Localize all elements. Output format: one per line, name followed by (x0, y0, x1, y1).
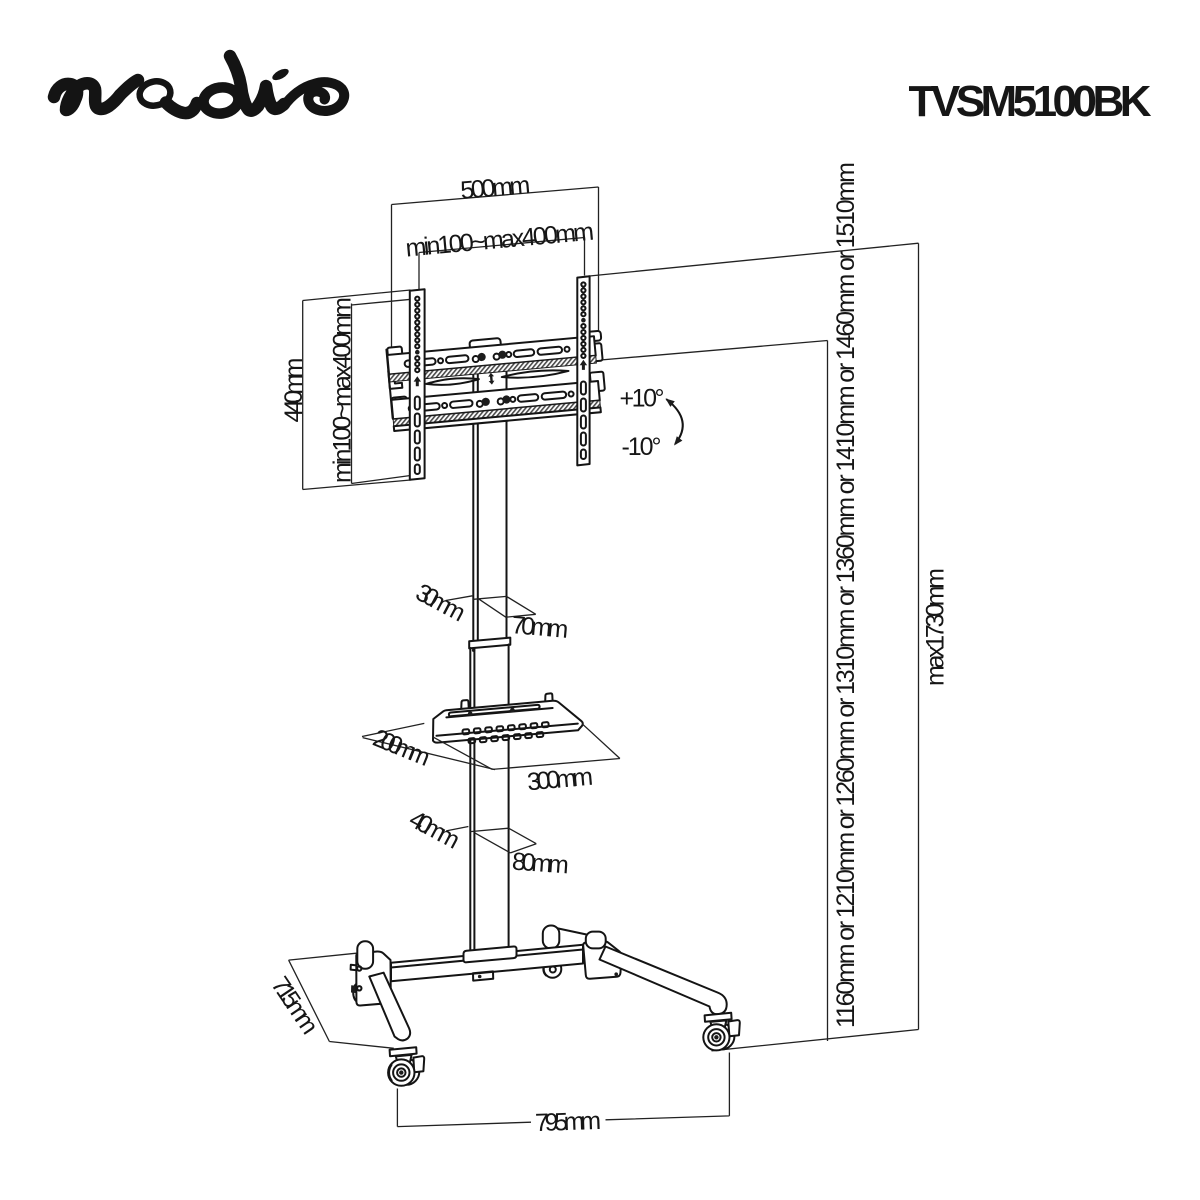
svg-text:70mm: 70mm (510, 611, 569, 644)
svg-text:300mm: 300mm (526, 763, 594, 797)
svg-text:min100~max400mm: min100~max400mm (329, 297, 357, 483)
svg-text:500mm: 500mm (459, 171, 531, 205)
svg-text:1160mm or 1210mm or 1260mm or: 1160mm or 1210mm or 1260mm or 1310mm or … (832, 162, 860, 1028)
svg-text:max1730mm: max1730mm (922, 568, 950, 686)
svg-text:795mm: 795mm (535, 1107, 602, 1137)
svg-text:TVSM5100BK: TVSM5100BK (909, 77, 1152, 126)
svg-text:440mm: 440mm (280, 358, 308, 423)
svg-text:-10°: -10° (622, 433, 662, 461)
svg-text:80mm: 80mm (511, 848, 570, 880)
svg-text:+10°: +10° (620, 385, 665, 413)
